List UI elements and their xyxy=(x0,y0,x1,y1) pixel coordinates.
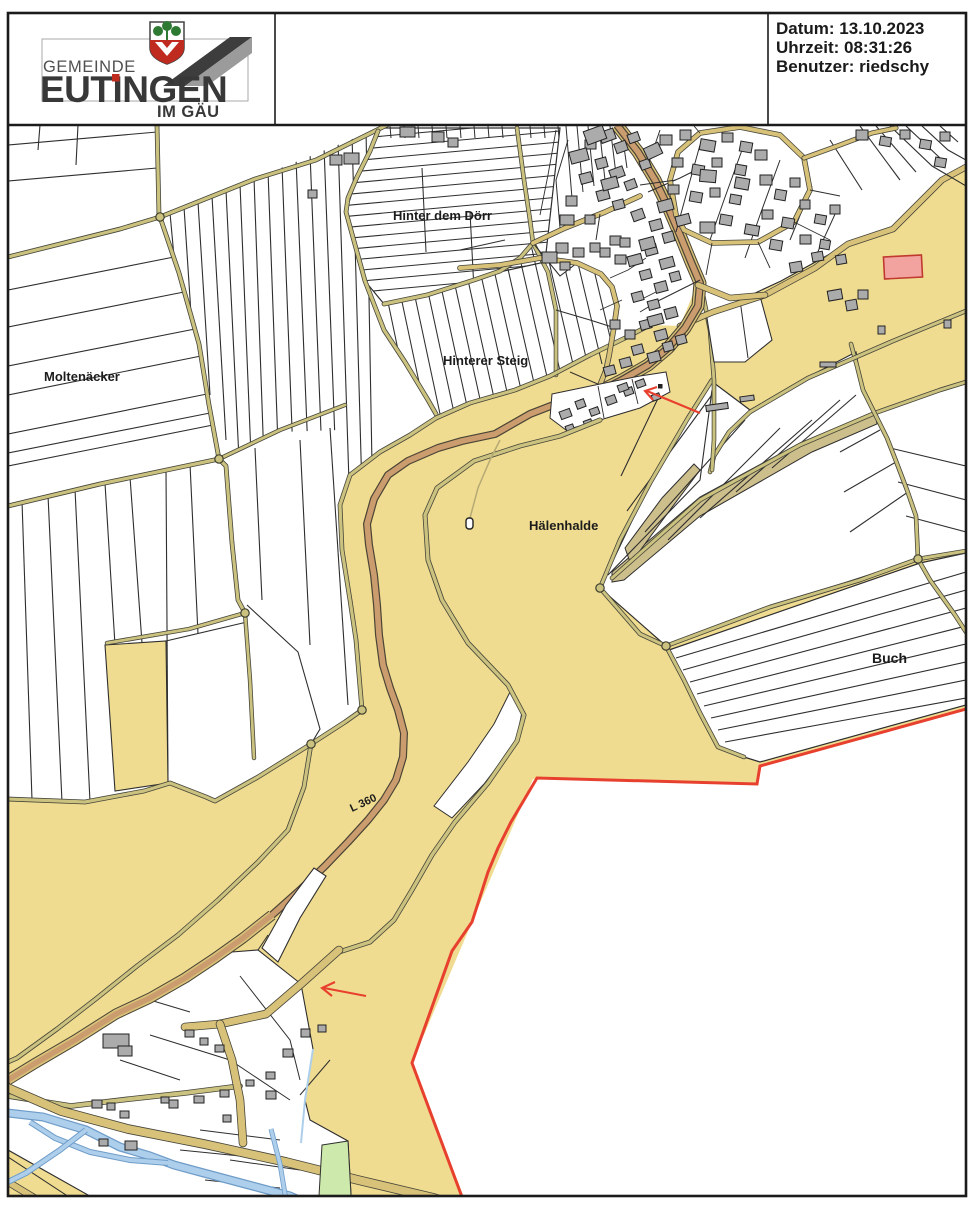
svg-text:IM GÄU: IM GÄU xyxy=(157,103,220,121)
svg-text:Uhrzeit: 08:31:26: Uhrzeit: 08:31:26 xyxy=(776,38,912,57)
svg-text:Buch: Buch xyxy=(872,650,907,666)
svg-text:Datum: 13.10.2023: Datum: 13.10.2023 xyxy=(776,19,924,38)
svg-text:Moltenäcker: Moltenäcker xyxy=(44,369,120,384)
svg-text:Hälenhalde: Hälenhalde xyxy=(529,518,598,533)
svg-text:Benutzer: riedschy: Benutzer: riedschy xyxy=(776,57,930,76)
svg-text:Hinter dem Dörr: Hinter dem Dörr xyxy=(393,208,492,223)
svg-text:Hinterer Steig: Hinterer Steig xyxy=(443,353,528,368)
